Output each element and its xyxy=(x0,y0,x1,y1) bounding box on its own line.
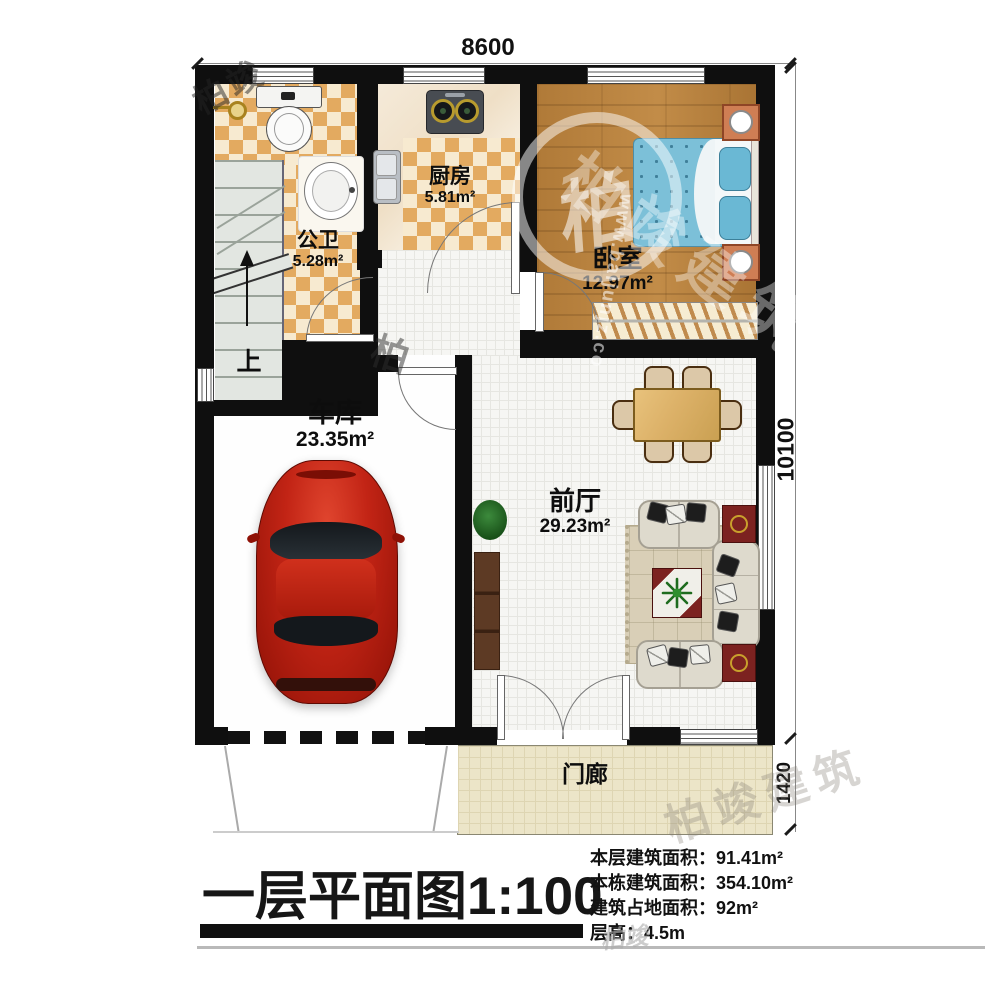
stat-row: 建筑占地面积：92m² xyxy=(590,896,920,921)
entry-door-left-leaf xyxy=(497,675,505,740)
driveway-edge-bottom xyxy=(213,831,459,833)
dimension-porch: 1420 xyxy=(774,753,796,813)
garage-door-leaf xyxy=(398,367,457,375)
stat-value: 354.10m² xyxy=(716,873,793,893)
bath-sink-faucet xyxy=(349,187,355,193)
toilet-bowl-inner xyxy=(274,113,304,145)
throw-pillow xyxy=(717,610,740,632)
nightstand-lamp xyxy=(729,250,753,274)
room-name: 公卫 xyxy=(268,229,368,253)
stair-winder-line xyxy=(217,185,286,229)
stat-label: 建筑占地面积： xyxy=(590,898,716,918)
room-area: 5.81m² xyxy=(400,189,500,207)
wall-garage-hall xyxy=(455,355,472,730)
car-windshield xyxy=(270,522,382,562)
bath-sink-bowl xyxy=(304,162,358,220)
room-label-garage: 车库 23.35m² xyxy=(270,398,400,452)
side-table-top xyxy=(722,505,756,543)
stove xyxy=(426,90,484,134)
stair-direction-arrow xyxy=(246,264,248,326)
bathroom-door-leaf xyxy=(306,334,374,342)
page-title: 一层平面图1:100 xyxy=(202,854,603,930)
title-underline-thin xyxy=(197,946,985,949)
nightstand-lamp xyxy=(729,110,753,134)
bedroom-door-leaf xyxy=(535,272,544,332)
room-area: 5.28m² xyxy=(268,253,368,271)
wall-garage-top xyxy=(378,355,398,372)
room-label-bathroom: 公卫 5.28m² xyxy=(268,229,368,270)
room-label-kitchen: 厨房 5.81m² xyxy=(400,165,500,206)
room-name: 厨房 xyxy=(400,165,500,189)
room-area: 23.35m² xyxy=(270,428,400,452)
title-underline-bar xyxy=(200,924,583,938)
dimension-line-top xyxy=(197,63,795,64)
burner-left xyxy=(431,99,455,123)
burner-center xyxy=(464,108,470,114)
stat-label: 层高： xyxy=(590,923,644,943)
car-grille xyxy=(296,470,356,479)
kitchen-sink-basin xyxy=(376,154,397,176)
toilet-bowl xyxy=(266,106,312,152)
room-name: 门廊 xyxy=(540,762,630,788)
hall-cabinet xyxy=(474,552,500,670)
wall-bedroom-bottom-left xyxy=(520,330,592,358)
coffee-table xyxy=(652,568,702,618)
window-hall-bottom xyxy=(680,729,758,745)
side-table-bottom xyxy=(722,644,756,682)
porch-floor xyxy=(457,745,773,835)
floor-plan-canvas: 上 xyxy=(0,0,1000,990)
kitchen-sink xyxy=(373,150,401,204)
stat-row: 本栋建筑面积：354.10m² xyxy=(590,871,920,896)
burner-center xyxy=(440,108,446,114)
toilet-button xyxy=(281,92,295,100)
window-bedroom xyxy=(587,67,705,84)
throw-pillow xyxy=(665,504,688,526)
driveway xyxy=(214,745,458,833)
car-roof xyxy=(276,559,376,619)
dimension-line-right xyxy=(795,63,796,740)
stat-value: 4.5m xyxy=(644,923,685,943)
throw-pillow xyxy=(685,502,707,523)
car-rear-window xyxy=(274,616,378,646)
car xyxy=(256,460,396,702)
stats-block: 本层建筑面积：91.41m² 本栋建筑面积：354.10m² 建筑占地面积：92… xyxy=(590,846,920,946)
stat-row: 层高：4.5m xyxy=(590,921,920,946)
bed-headboard xyxy=(751,140,759,245)
throw-pillow xyxy=(689,644,711,665)
table-plant-icon xyxy=(660,576,694,610)
side-table-medallion xyxy=(730,654,748,672)
bed-pillow xyxy=(719,196,751,240)
burner-right xyxy=(455,99,479,123)
stairs-up-label: 上 xyxy=(233,348,265,376)
wall-bedroom-bottom-right xyxy=(592,337,756,358)
stove-panel xyxy=(445,93,465,97)
stat-value: 92m² xyxy=(716,898,758,918)
bed-pillow xyxy=(719,147,751,191)
room-name: 前厅 xyxy=(510,487,640,516)
stair-arrow-head xyxy=(240,250,254,266)
entry-door-right-leaf xyxy=(622,675,630,740)
wall-bottom-left-corner xyxy=(195,727,228,745)
wall-bottom-right xyxy=(627,727,680,745)
hall-plant xyxy=(473,500,507,540)
bedroom-railing xyxy=(592,302,758,340)
window-kitchen xyxy=(403,67,485,84)
garage-door-dashed xyxy=(228,731,425,744)
stat-label: 本层建筑面积： xyxy=(590,848,716,868)
room-name: 车库 xyxy=(270,398,400,428)
toilet-tank xyxy=(256,86,322,108)
window-bathroom xyxy=(252,67,314,84)
room-label-porch: 门廊 xyxy=(540,762,630,788)
kitchen-sink-basin xyxy=(376,178,397,200)
stat-row: 本层建筑面积：91.41m² xyxy=(590,846,920,871)
dimension-top: 8600 xyxy=(440,34,536,62)
nightstand-bottom xyxy=(722,244,760,281)
stat-label: 本栋建筑面积： xyxy=(590,873,716,893)
throw-pillow xyxy=(714,582,738,605)
towel-ring-icon xyxy=(228,101,247,120)
nightstand-top xyxy=(722,104,760,141)
car-rear-bumper xyxy=(276,678,376,691)
bath-sink-inner xyxy=(312,170,350,212)
room-label-hall: 前厅 29.23m² xyxy=(510,487,640,537)
stat-value: 91.41m² xyxy=(716,848,783,868)
window-stairs-left xyxy=(197,368,214,402)
dimension-right: 10100 xyxy=(773,410,800,490)
side-table-medallion xyxy=(730,515,748,533)
room-area: 29.23m² xyxy=(510,516,640,537)
watermark-logo-glyph: 柏 xyxy=(556,142,640,271)
throw-pillow xyxy=(667,647,689,669)
dining-table xyxy=(633,388,721,442)
